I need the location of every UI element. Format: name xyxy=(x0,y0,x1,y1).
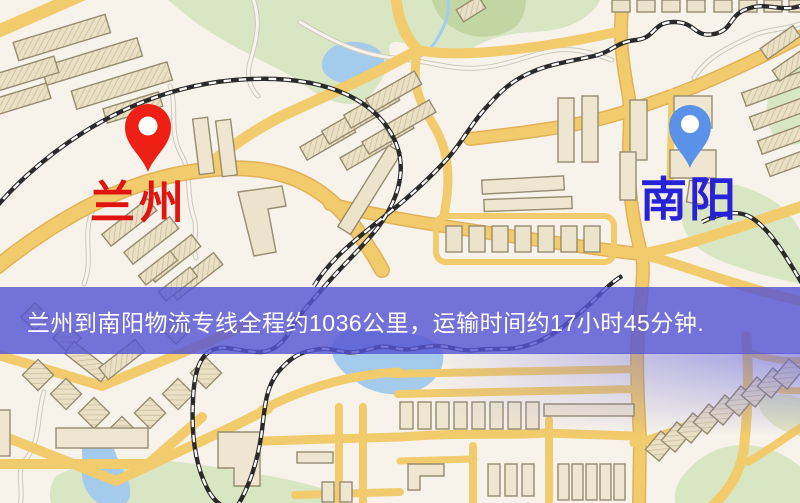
route-info-text: 兰州到南阳物流专线全程约1036公里，运输时间约17小时45分钟. xyxy=(0,304,704,338)
map-canvas xyxy=(0,0,800,503)
logistics-route-map: 兰州 南阳 兰州到南阳物流专线全程约1036公里，运输时间约17小时45分钟. xyxy=(0,0,800,503)
route-info-banner: 兰州到南阳物流专线全程约1036公里，运输时间约17小时45分钟. xyxy=(0,287,800,354)
